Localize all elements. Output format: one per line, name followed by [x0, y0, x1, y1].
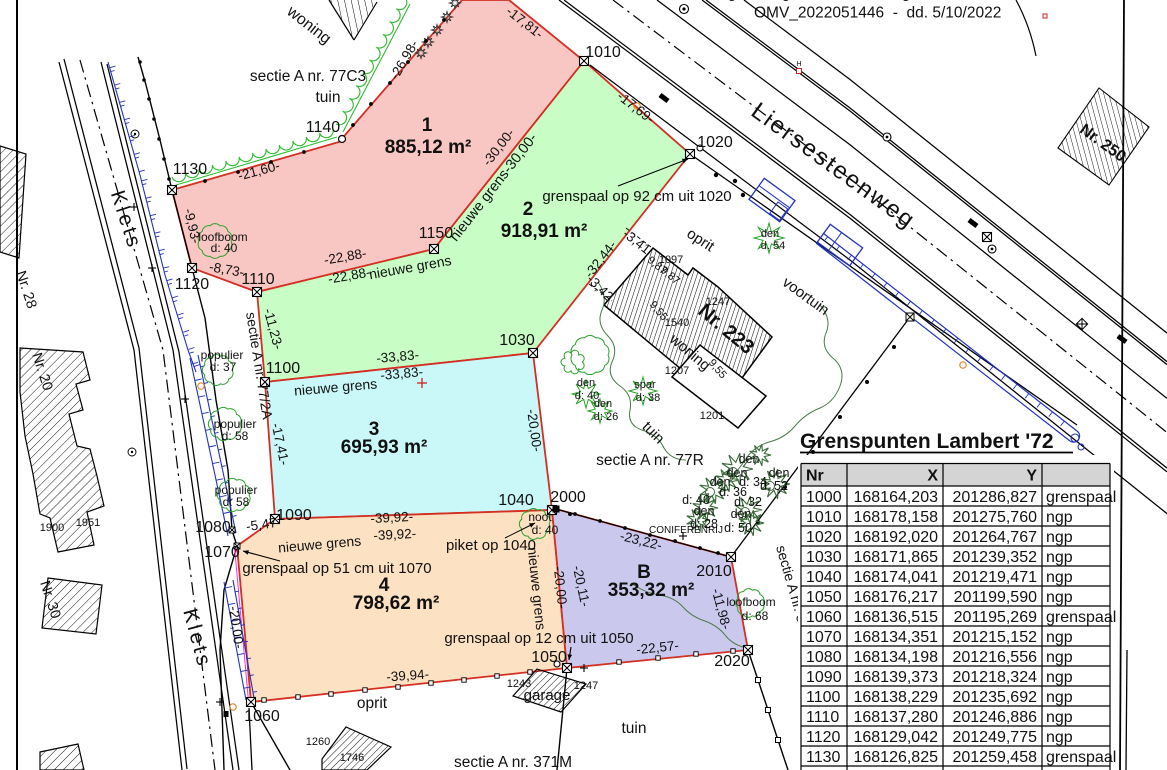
svg-text:ngp: ngp — [1046, 529, 1073, 546]
svg-text:ngp: ngp — [1046, 569, 1073, 586]
svg-text:885,12 m²: 885,12 m² — [385, 137, 472, 158]
svg-text:piket op 1040: piket op 1040 — [446, 537, 536, 554]
svg-text:tuin: tuin — [622, 720, 647, 737]
svg-text:d: 50: d: 50 — [724, 521, 752, 535]
svg-text:ngp: ngp — [1046, 689, 1073, 706]
svg-text:ngp: ngp — [1046, 589, 1073, 606]
svg-text:1130: 1130 — [173, 161, 208, 178]
svg-text:1100: 1100 — [806, 689, 841, 706]
svg-text:1120: 1120 — [175, 276, 210, 293]
svg-text:ngp: ngp — [1046, 629, 1073, 646]
svg-text:den: den — [694, 504, 715, 518]
svg-text:d: 40: d: 40 — [532, 523, 559, 537]
svg-text:d: 68: d: 68 — [742, 609, 769, 623]
svg-text:1243: 1243 — [507, 678, 531, 690]
svg-text:1900: 1900 — [40, 522, 64, 534]
svg-text:168126,825: 168126,825 — [853, 749, 938, 766]
svg-text:den: den — [769, 466, 790, 480]
svg-text:X: X — [927, 468, 938, 485]
svg-text:1030: 1030 — [499, 332, 535, 349]
svg-text:168129,042: 168129,042 — [853, 729, 938, 746]
svg-text:d: 37: d: 37 — [210, 360, 237, 374]
svg-text:168174,041: 168174,041 — [853, 569, 938, 586]
svg-text:1090: 1090 — [276, 507, 312, 524]
svg-text:oprit: oprit — [684, 225, 718, 256]
svg-text:d: 40: d: 40 — [211, 241, 238, 255]
svg-text:168164,203: 168164,203 — [853, 489, 938, 506]
svg-text:168192,020: 168192,020 — [853, 529, 938, 546]
svg-text:168137,280: 168137,280 — [853, 709, 938, 726]
svg-text:voortuin: voortuin — [779, 274, 832, 319]
svg-text:201275,760: 201275,760 — [952, 509, 1037, 526]
svg-text:d: 58: d: 58 — [222, 429, 249, 443]
svg-text:-39,92-: -39,92- — [370, 509, 414, 526]
svg-text:den: den — [594, 398, 612, 410]
svg-text:1110: 1110 — [241, 271, 274, 288]
svg-text:201219,471: 201219,471 — [952, 569, 1037, 586]
svg-text:woning: woning — [283, 3, 334, 48]
svg-text:oprit: oprit — [357, 695, 388, 712]
svg-text:201218,324: 201218,324 — [952, 669, 1037, 686]
svg-text:2010: 2010 — [696, 563, 732, 580]
svg-text:918,91 m²: 918,91 m² — [501, 221, 588, 242]
svg-text:1080: 1080 — [806, 649, 842, 666]
svg-text:1060: 1060 — [806, 609, 842, 626]
svg-text:d: 52: d: 52 — [760, 479, 788, 493]
svg-text:201235,692: 201235,692 — [952, 689, 1037, 706]
svg-text:Grenspunten Lambert '72: Grenspunten Lambert '72 — [800, 430, 1054, 453]
svg-text:den: den — [731, 507, 752, 521]
svg-text:1010: 1010 — [806, 509, 842, 526]
svg-text:1010: 1010 — [585, 44, 621, 61]
svg-text:grenspaal op 92 cm uit 1020: grenspaal op 92 cm uit 1020 — [542, 188, 731, 205]
svg-text:1030: 1030 — [806, 549, 842, 566]
svg-text:201215,152: 201215,152 — [952, 629, 1037, 646]
svg-text:grenspaal: grenspaal — [1046, 609, 1116, 626]
svg-text:1080: 1080 — [195, 519, 231, 536]
svg-text:1020: 1020 — [806, 529, 842, 546]
svg-text:-39,92-: -39,92- — [373, 526, 417, 543]
svg-text:1746: 1746 — [340, 752, 364, 764]
svg-text:Y: Y — [1026, 468, 1037, 485]
svg-text:1097: 1097 — [659, 254, 683, 266]
svg-text:353,32 m²: 353,32 m² — [608, 580, 695, 601]
svg-text:g: g — [902, 0, 910, 2]
svg-text:168171,865: 168171,865 — [853, 549, 938, 566]
svg-text:ngp: ngp — [1046, 709, 1073, 726]
svg-text:201249,775: 201249,775 — [952, 729, 1037, 746]
svg-text:1130: 1130 — [806, 749, 841, 766]
svg-text:1: 1 — [422, 115, 433, 136]
svg-text:1060: 1060 — [244, 708, 280, 725]
svg-text:ngp: ngp — [1046, 509, 1073, 526]
svg-text:tuin: tuin — [639, 418, 668, 447]
svg-text:grenspaal op 12 cm uit 1050: grenspaal op 12 cm uit 1050 — [444, 630, 633, 647]
svg-text:1951: 1951 — [76, 517, 100, 529]
svg-text:1050: 1050 — [806, 589, 842, 606]
svg-text:sectie A nr. 77R: sectie A nr. 77R — [596, 452, 704, 469]
svg-text:695,93 m²: 695,93 m² — [341, 437, 428, 458]
svg-text:201199,590: 201199,590 — [954, 589, 1037, 606]
svg-text:Liersesteenweg: Liersesteenweg — [746, 97, 921, 234]
svg-text:1201: 1201 — [700, 410, 724, 422]
svg-text:grenspaal: grenspaal — [1046, 749, 1116, 766]
svg-text:2020: 2020 — [714, 653, 750, 670]
svg-text:1050: 1050 — [531, 649, 567, 666]
svg-text:201195,269: 201195,269 — [954, 609, 1037, 626]
svg-text:1090: 1090 — [806, 669, 842, 686]
svg-text:1540: 1540 — [665, 317, 689, 329]
svg-text:201239,352: 201239,352 — [952, 549, 1037, 566]
svg-text:sectie A nr. 371M: sectie A nr. 371M — [454, 754, 572, 770]
svg-text:d: 58: d: 58 — [223, 495, 250, 509]
svg-text:201264,767: 201264,767 — [952, 529, 1037, 546]
svg-text:1100: 1100 — [266, 360, 301, 377]
svg-text:1040: 1040 — [806, 569, 842, 586]
svg-text:CONIFERENRIJ: CONIFERENRIJ — [649, 525, 723, 536]
svg-text:168134,351: 168134,351 — [853, 629, 938, 646]
svg-text:201259,458: 201259,458 — [952, 749, 1037, 766]
svg-text:168178,158: 168178,158 — [853, 509, 938, 526]
svg-text:1000: 1000 — [806, 489, 842, 506]
svg-text:2: 2 — [523, 199, 534, 220]
svg-text:sectie A nr. 77C3: sectie A nr. 77C3 — [250, 68, 366, 85]
svg-text:1207: 1207 — [665, 365, 689, 377]
svg-text:-39,94-: -39,94- — [386, 667, 430, 685]
svg-text:1247: 1247 — [574, 680, 598, 692]
svg-text:den: den — [739, 452, 760, 466]
svg-text:d: 38: d: 38 — [636, 392, 660, 404]
svg-text:ngp: ngp — [1046, 649, 1073, 666]
svg-text:1140: 1140 — [306, 119, 341, 136]
svg-text:ngp: ngp — [1046, 729, 1073, 746]
svg-text:spar: spar — [634, 379, 656, 391]
svg-text:g: g — [728, 0, 736, 2]
svg-text:ngp: ngp — [1046, 549, 1073, 566]
svg-text:798,62 m²: 798,62 m² — [353, 593, 440, 614]
svg-text:loofboom: loofboom — [726, 595, 775, 609]
svg-text:168136,515: 168136,515 — [853, 609, 938, 626]
svg-text:d. 54: d. 54 — [761, 240, 785, 252]
svg-text:201286,827: 201286,827 — [952, 489, 1037, 506]
svg-text:Nr: Nr — [806, 468, 824, 485]
svg-text:noot: noot — [528, 510, 552, 524]
svg-text:grenspaal op 51 cm uit 1070: grenspaal op 51 cm uit 1070 — [242, 560, 431, 577]
svg-text:den: den — [761, 228, 779, 240]
svg-text:168176,217: 168176,217 — [853, 589, 938, 606]
svg-text:g: g — [782, 0, 790, 2]
svg-text:H: H — [796, 61, 801, 68]
svg-text:168139,373: 168139,373 — [853, 669, 938, 686]
svg-text:168138,229: 168138,229 — [853, 689, 938, 706]
svg-text:1070: 1070 — [204, 544, 240, 561]
svg-text:grenspaal: grenspaal — [1046, 489, 1116, 506]
svg-text:1070: 1070 — [806, 629, 842, 646]
svg-text:1120: 1120 — [806, 729, 841, 746]
svg-text:OMV_2022051446 - dd. 5/10/20: OMV_2022051446 - dd. 5/10/2022 — [754, 5, 1001, 22]
svg-text:1260: 1260 — [306, 736, 330, 748]
svg-text:ngp: ngp — [1046, 669, 1073, 686]
svg-text:201246,886: 201246,886 — [952, 709, 1037, 726]
svg-text:201216,556: 201216,556 — [952, 649, 1037, 666]
svg-text:1247: 1247 — [706, 296, 730, 308]
svg-text:168134,198: 168134,198 — [853, 649, 938, 666]
svg-text:tuin: tuin — [316, 89, 341, 106]
svg-text:1020: 1020 — [697, 134, 733, 151]
svg-text:1110: 1110 — [806, 709, 839, 726]
svg-text:d: 26: d: 26 — [594, 411, 618, 423]
svg-text:1040: 1040 — [498, 492, 534, 509]
svg-text:2000: 2000 — [550, 489, 586, 506]
svg-text:d: 32: d: 32 — [734, 495, 762, 509]
svg-text:den: den — [577, 377, 595, 389]
